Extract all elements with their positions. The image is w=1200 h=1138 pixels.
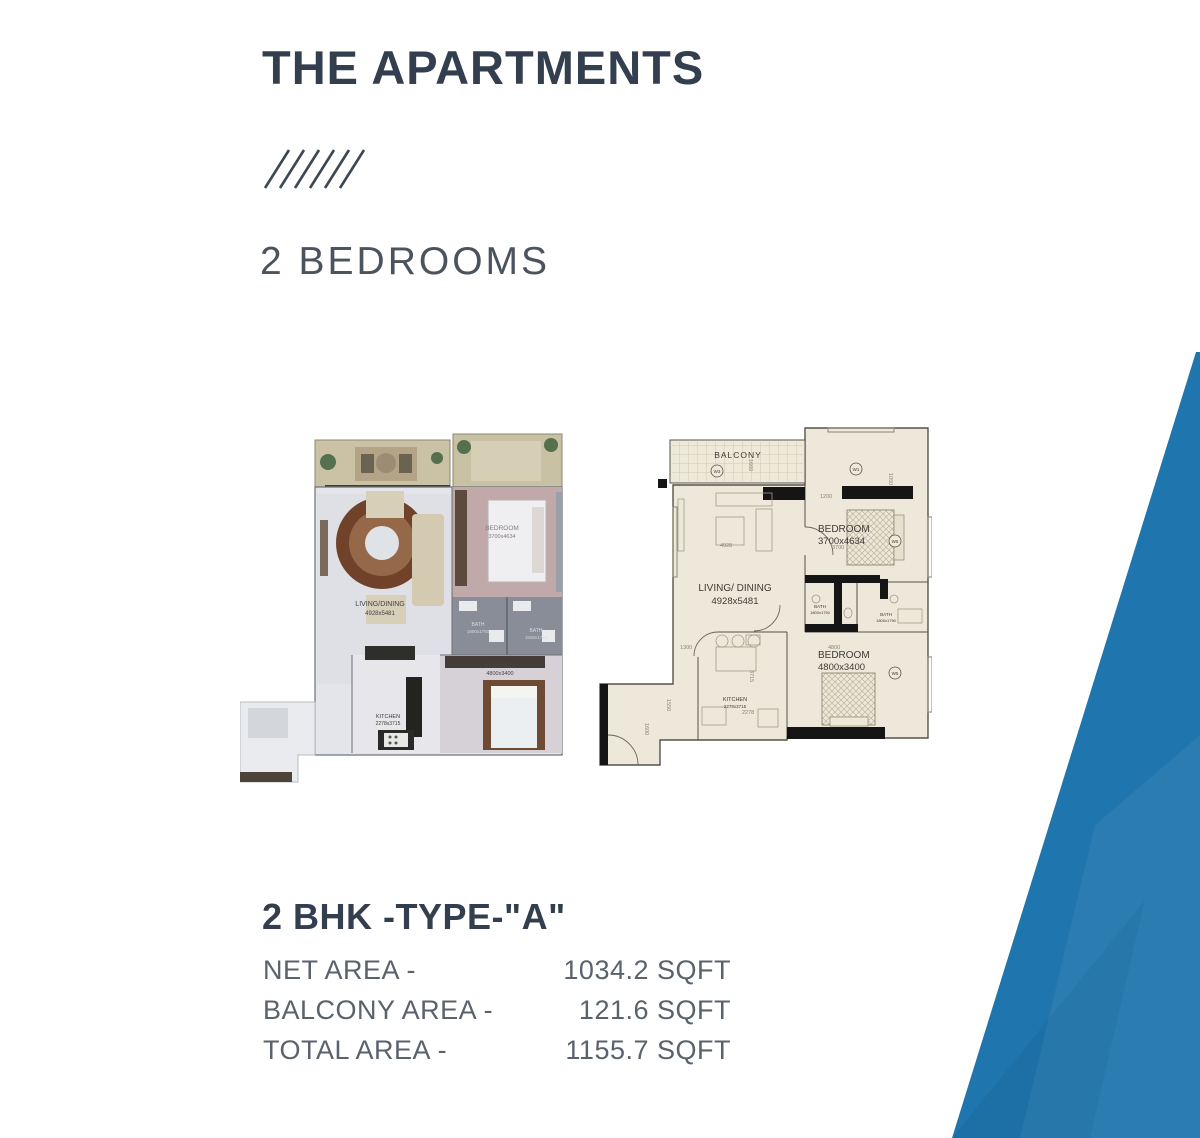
render-living-label: LIVING/DINING <box>355 601 404 608</box>
dim-1300: 1300 <box>680 645 692 651</box>
dim-2278: 2278 <box>742 710 754 716</box>
render-bedroom2-dim: 4800x3400 <box>486 671 513 677</box>
net-area-row: NET AREA - 1034.2 SQFT <box>263 950 731 990</box>
area-table: NET AREA - 1034.2 SQFT BALCONY AREA - 12… <box>263 950 731 1070</box>
plan-bedroom2-label: BEDROOM <box>818 650 870 661</box>
render-kitchen-label: KITCHEN <box>376 714 400 720</box>
dim-1600: 1600 <box>643 723 649 735</box>
dim-1660: 1660 <box>747 459 753 471</box>
render-bath1-dim: 1800x1750 <box>467 629 490 634</box>
plan-bath2-dim: 1800x1750 <box>876 618 897 623</box>
floorplan-drawing: 1660 1200 1050 4928 3700 1300 1550 1600 … <box>598 427 932 777</box>
dim-1550: 1550 <box>665 699 671 711</box>
plan-bedroom1-dim: 3700x4634 <box>818 536 865 547</box>
floorplan-3d-render: LIVING/DINING 4928x5481 BEDROOM 3700x463… <box>240 430 567 783</box>
net-area-value: 1034.2 SQFT <box>563 950 731 990</box>
plan-living-dim: 4928x5481 <box>711 596 758 607</box>
window-tag-w3: W3 <box>714 469 721 474</box>
plan-bedroom1-label: BEDROOM <box>818 524 870 535</box>
window-tag-w5b: W5 <box>892 671 899 676</box>
window-tag-w5a: W5 <box>892 539 899 544</box>
page-title: THE APARTMENTS <box>262 40 704 95</box>
bedrooms-subtitle: 2 BEDROOMS <box>260 240 550 284</box>
plan-bath1-dim: 1800x1750 <box>810 610 831 615</box>
plan-living-label: LIVING/ DINING <box>698 583 772 594</box>
unit-type-title: 2 BHK -TYPE-"A" <box>262 896 566 938</box>
balcony-area-value: 121.6 SQFT <box>579 990 731 1030</box>
render-bath2-dim: 1838x1715 <box>525 635 548 640</box>
blue-corner-decoration <box>940 345 1200 1138</box>
plan-bedroom2-dim: 4800x3400 <box>818 662 865 673</box>
plan-bath2-label: BATH <box>880 612 892 617</box>
balcony-area-row: BALCONY AREA - 121.6 SQFT <box>263 990 731 1030</box>
dim-3715: 3715 <box>748 670 754 682</box>
render-bedroom1-dim: 3700x4634 <box>488 534 515 540</box>
plan-kitchen-label: KITCHEN <box>723 697 747 703</box>
window-tag-w1: W1 <box>853 467 860 472</box>
render-bath1-label: BATH <box>472 622 485 628</box>
total-area-value: 1155.7 SQFT <box>565 1030 731 1070</box>
render-kitchen-dim: 2278x3715 <box>376 721 401 727</box>
plan-balcony-label: BALCONY <box>714 450 762 460</box>
total-area-label: TOTAL AREA - <box>263 1030 447 1070</box>
total-area-row: TOTAL AREA - 1155.7 SQFT <box>263 1030 731 1070</box>
dim-1200: 1200 <box>820 494 832 500</box>
render-bath2-label: BATH <box>530 628 543 634</box>
net-area-label: NET AREA - <box>263 950 416 990</box>
balcony-area-label: BALCONY AREA - <box>263 990 493 1030</box>
render-bedroom2-label: BEDROOM <box>484 663 515 669</box>
dim-4928: 4928 <box>720 543 732 549</box>
hatch-decoration <box>263 147 371 191</box>
plan-kitchen-dim: 2278x3715 <box>724 704 747 709</box>
plan-bath1-label: BATH <box>814 604 826 609</box>
brochure-page: THE APARTMENTS 2 BEDROOMS <box>0 0 1200 1138</box>
render-living-dim: 4928x5481 <box>365 611 395 617</box>
render-bedroom1-label: BEDROOM <box>485 525 519 532</box>
dim-1050: 1050 <box>887 473 893 485</box>
